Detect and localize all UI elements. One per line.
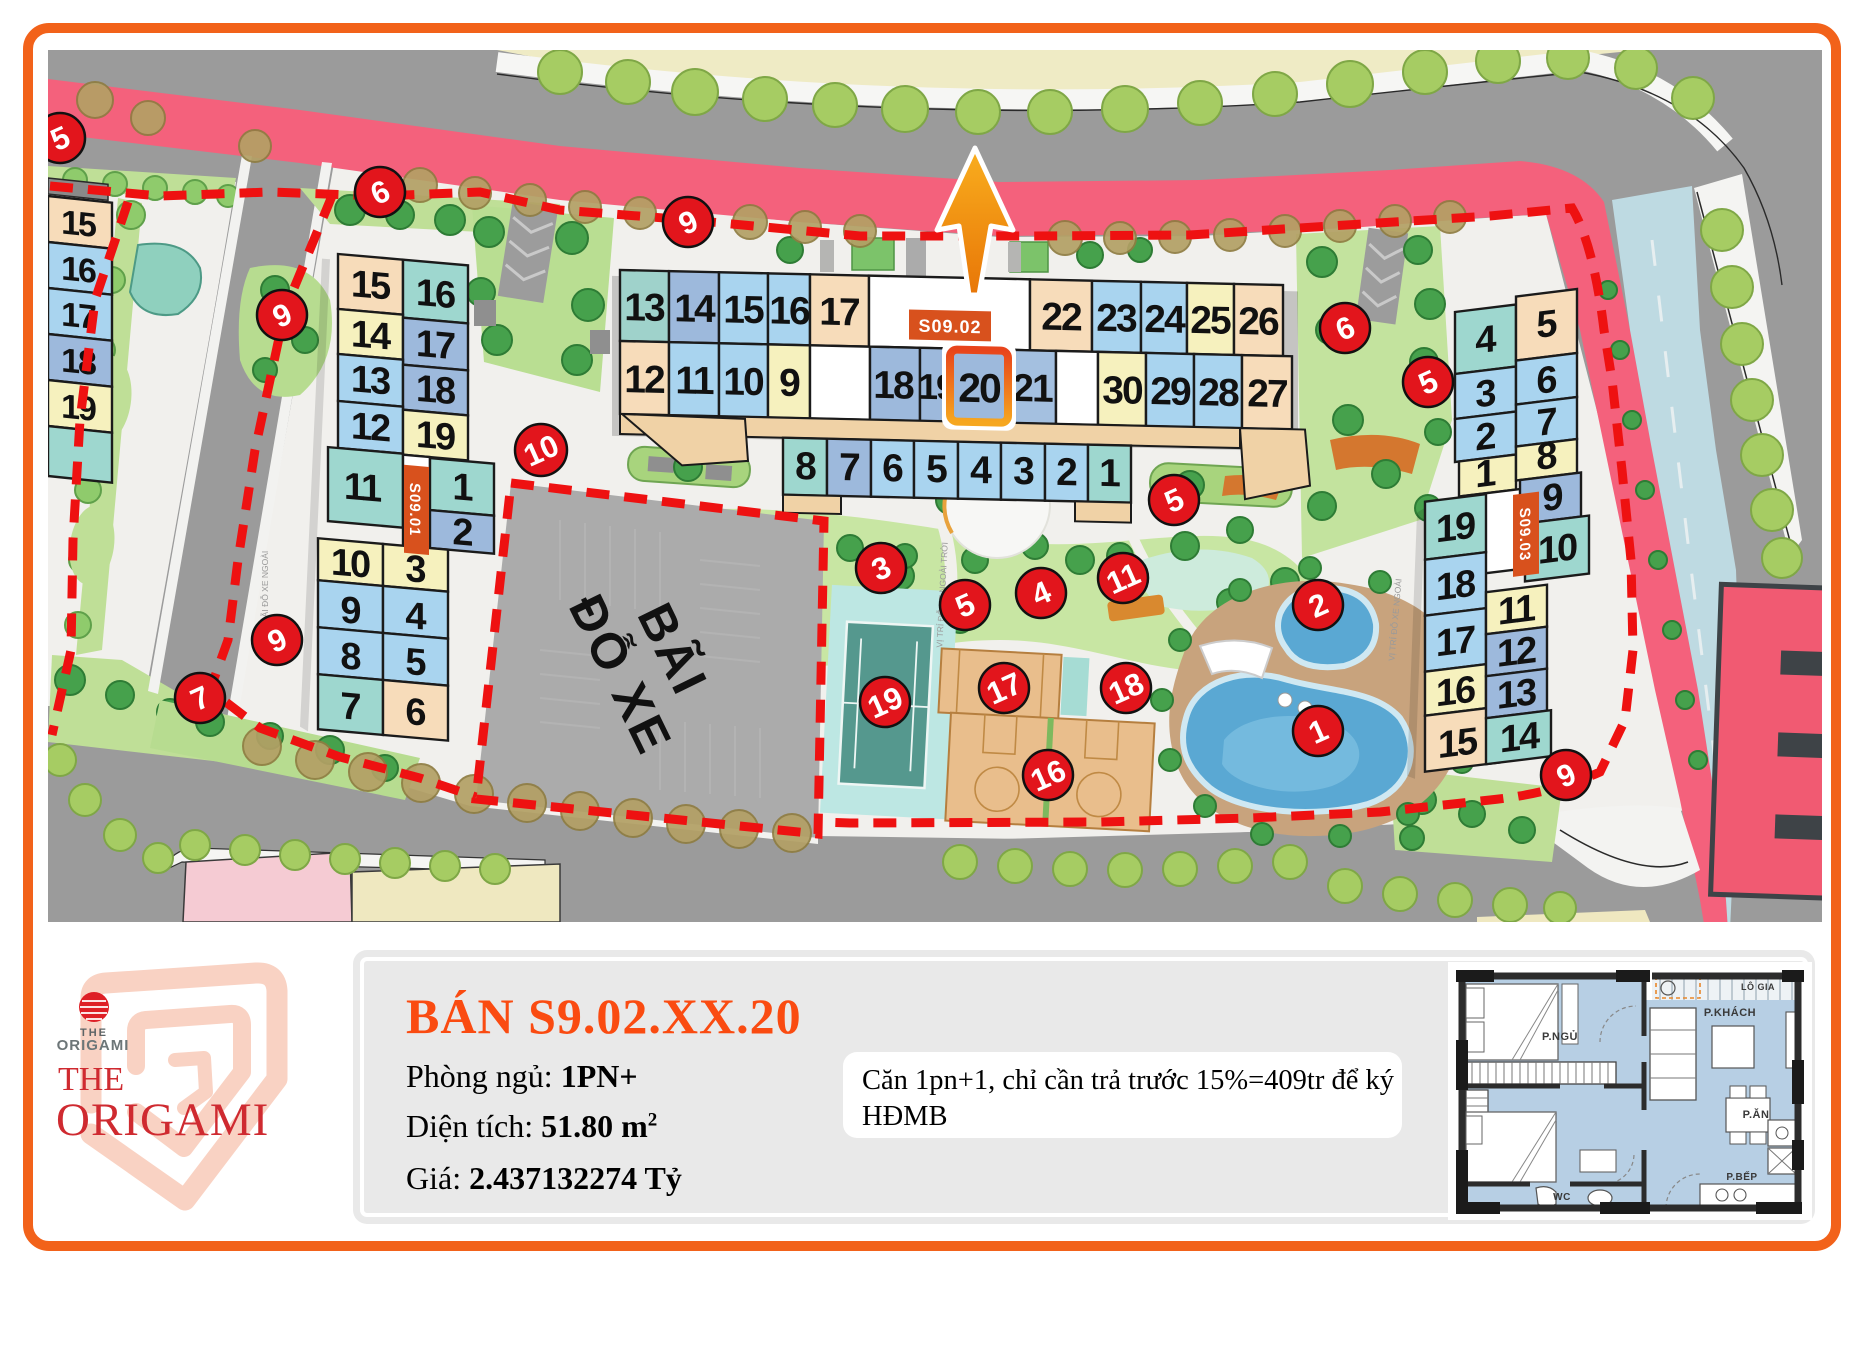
svg-text:19: 19 [416,414,455,459]
svg-text:1: 1 [1475,451,1496,496]
svg-text:9: 9 [1542,475,1562,520]
svg-text:ORIGAMI: ORIGAMI [57,1037,130,1054]
svg-text:17: 17 [416,323,455,368]
svg-text:22: 22 [1041,296,1082,340]
svg-text:15: 15 [723,288,764,332]
svg-text:4: 4 [1475,317,1496,362]
svg-text:P.BẾP: P.BẾP [1726,1170,1757,1183]
svg-text:16: 16 [61,249,96,291]
svg-text:10: 10 [723,360,764,404]
svg-text:29: 29 [1150,370,1191,414]
svg-text:13: 13 [351,358,390,403]
svg-text:P.NGỦ: P.NGỦ [1542,1030,1578,1043]
svg-text:28: 28 [1198,371,1239,415]
svg-text:27: 27 [1247,372,1287,416]
svg-text:6: 6 [882,447,903,490]
svg-text:8: 8 [795,445,816,488]
svg-text:WC: WC [1553,1192,1571,1203]
svg-text:17: 17 [819,291,859,335]
svg-text:14: 14 [674,287,716,331]
svg-text:8: 8 [1536,434,1557,479]
svg-text:11: 11 [344,466,382,511]
svg-text:12: 12 [1497,628,1536,676]
svg-text:26: 26 [1238,300,1279,344]
svg-text:6: 6 [405,691,425,735]
svg-text:18: 18 [1436,562,1476,610]
svg-text:9: 9 [779,362,800,405]
svg-text:11: 11 [1498,586,1536,633]
svg-text:7: 7 [839,446,859,489]
svg-text:19: 19 [1436,504,1475,552]
svg-text:21: 21 [1012,367,1053,411]
svg-text:14: 14 [1500,714,1540,762]
svg-text:S09.01: S09.01 [406,482,423,537]
svg-text:4: 4 [405,595,426,639]
svg-text:S09.03: S09.03 [1516,507,1533,563]
svg-text:16: 16 [769,289,810,333]
svg-text:12: 12 [351,405,390,450]
svg-text:18: 18 [416,368,455,413]
svg-text:9: 9 [340,589,360,633]
svg-text:12: 12 [624,358,665,402]
svg-text:6: 6 [1536,358,1556,403]
svg-text:30: 30 [1102,369,1143,413]
svg-text:5: 5 [926,448,947,491]
svg-text:ORIGAMI: ORIGAMI [56,1094,269,1146]
svg-text:24: 24 [1144,298,1186,342]
svg-text:3: 3 [1475,371,1495,416]
svg-text:15: 15 [351,263,391,308]
svg-text:23: 23 [1096,297,1137,341]
svg-text:15: 15 [1438,719,1478,767]
svg-text:10: 10 [1538,525,1577,573]
svg-text:25: 25 [1190,299,1231,343]
svg-text:1: 1 [452,466,473,510]
svg-text:16: 16 [416,272,455,317]
svg-text:2: 2 [452,511,472,555]
svg-text:5: 5 [1536,302,1557,347]
svg-text:14: 14 [351,313,391,358]
svg-text:P.ĂN: P.ĂN [1743,1108,1770,1121]
svg-text:17: 17 [1436,618,1475,666]
svg-text:4: 4 [970,449,992,492]
svg-text:P.KHÁCH: P.KHÁCH [1704,1006,1756,1019]
svg-text:3: 3 [405,548,425,592]
svg-text:5: 5 [405,641,426,685]
svg-text:13: 13 [1497,670,1536,718]
svg-text:20: 20 [958,365,1001,412]
svg-text:S09.02: S09.02 [918,316,981,337]
svg-text:THE: THE [58,1061,124,1098]
svg-text:11: 11 [675,359,714,403]
svg-text:3: 3 [1013,450,1034,493]
svg-text:7: 7 [340,685,360,729]
svg-text:8: 8 [340,635,360,679]
svg-text:13: 13 [624,286,665,330]
svg-text:2: 2 [1056,451,1077,494]
svg-text:LÔ GIA: LÔ GIA [1741,981,1775,992]
svg-text:15: 15 [61,203,96,245]
svg-text:10: 10 [331,541,370,586]
svg-text:16: 16 [1436,668,1475,716]
svg-text:1: 1 [1099,452,1120,495]
svg-text:18: 18 [873,364,914,408]
